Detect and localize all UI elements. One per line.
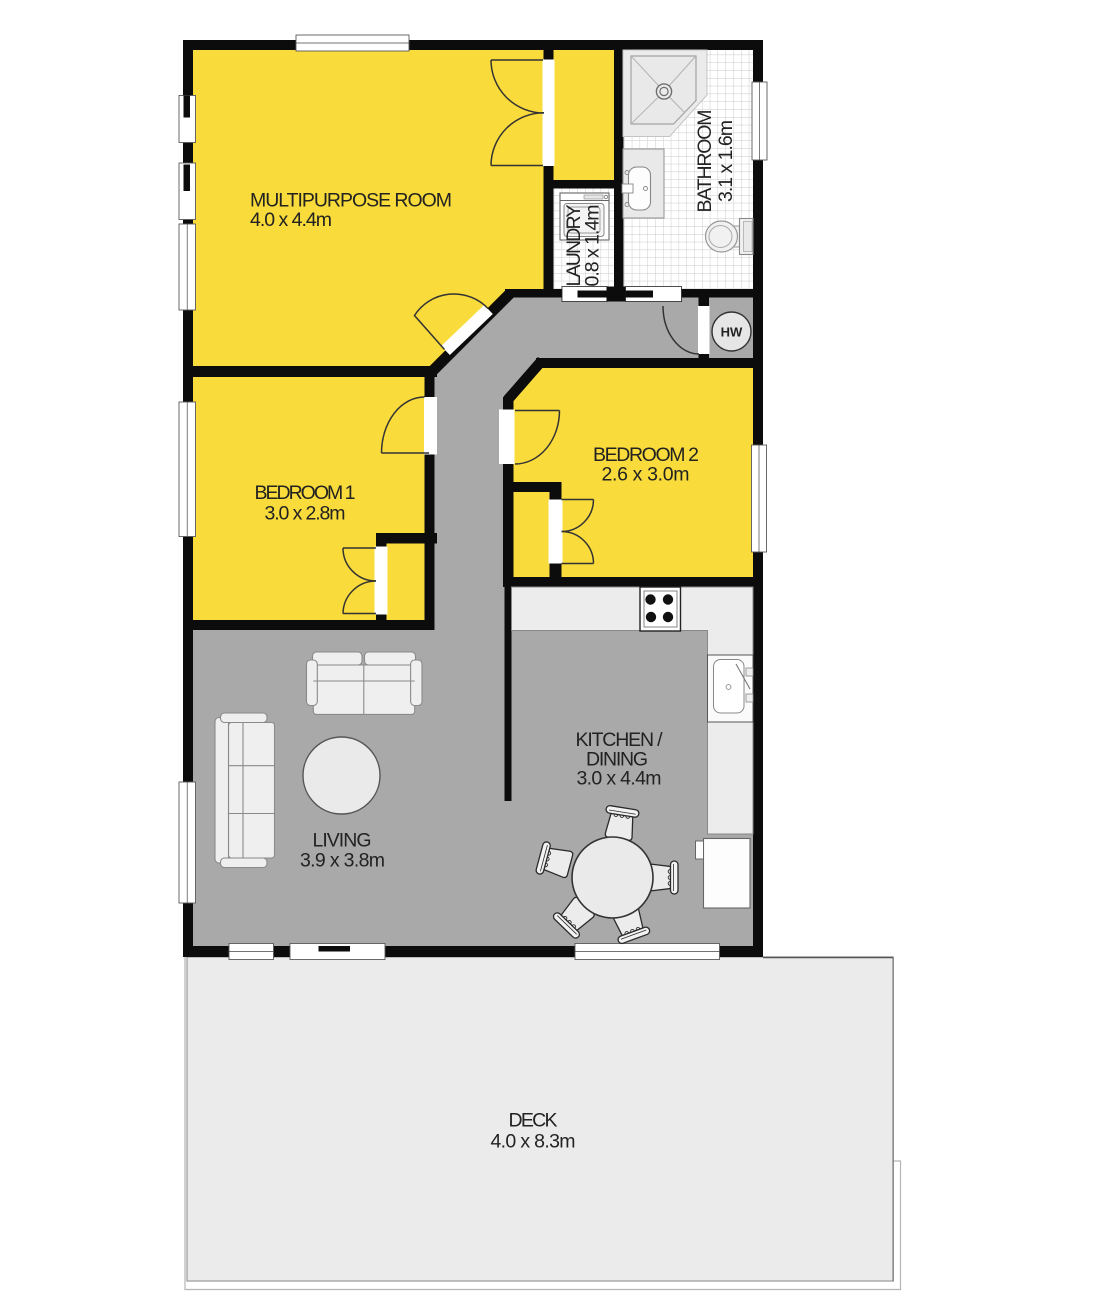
svg-text:HW: HW <box>721 325 743 340</box>
svg-text:0.8 x 1.4m: 0.8 x 1.4m <box>582 205 604 287</box>
svg-text:3.1 x 1.6m: 3.1 x 1.6m <box>715 120 737 202</box>
svg-text:BEDROOM 1: BEDROOM 1 <box>255 482 356 504</box>
svg-text:3.0 x 4.4m: 3.0 x 4.4m <box>577 768 662 790</box>
svg-text:LIVING: LIVING <box>313 830 372 852</box>
svg-text:2.6 x 3.0m: 2.6 x 3.0m <box>602 464 690 486</box>
svg-text:4.0 x 4.4m: 4.0 x 4.4m <box>250 209 332 231</box>
svg-text:BATHROOM: BATHROOM <box>694 110 716 213</box>
svg-text:4.0 x 8.3m: 4.0 x 8.3m <box>491 1131 576 1153</box>
svg-text:DECK: DECK <box>509 1110 558 1132</box>
svg-text:3.0 x 2.8m: 3.0 x 2.8m <box>265 503 346 525</box>
svg-text:3.9 x 3.8m: 3.9 x 3.8m <box>300 850 385 872</box>
